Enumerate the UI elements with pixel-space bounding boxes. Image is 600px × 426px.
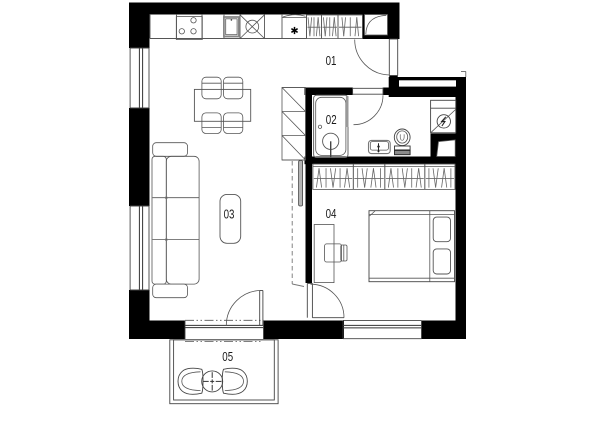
svg-text:04: 04 (326, 208, 337, 221)
svg-text:05: 05 (222, 351, 233, 364)
svg-text:01: 01 (326, 55, 337, 68)
svg-text:02: 02 (326, 114, 337, 127)
svg-text:03: 03 (224, 209, 235, 222)
